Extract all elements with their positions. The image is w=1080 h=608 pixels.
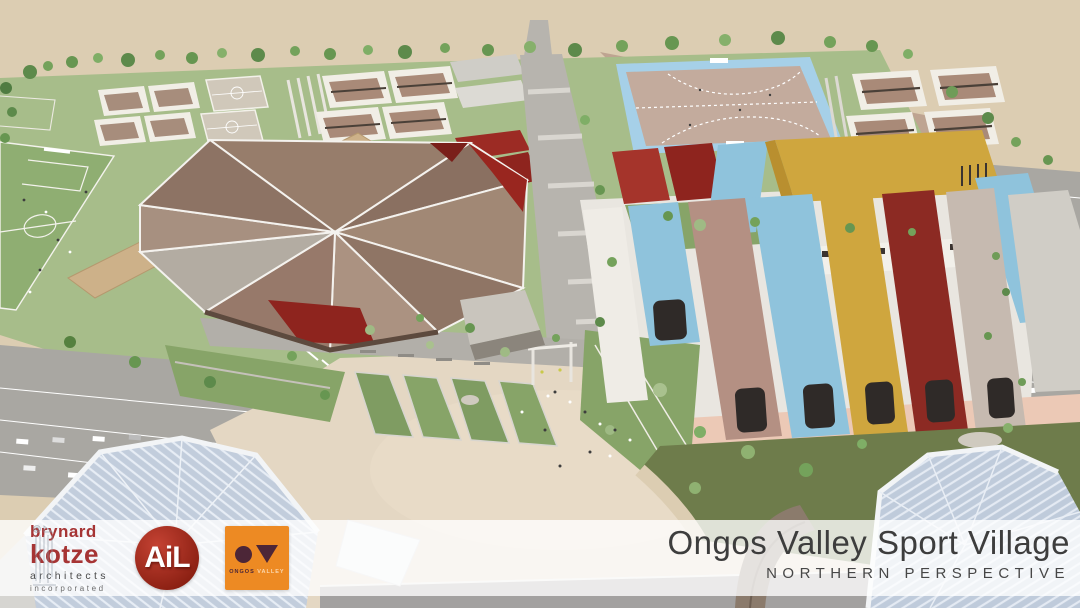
project-title: Ongos Valley Sport Village [667,526,1070,561]
architect-logo: brynard kotze architects incorporated [30,523,109,593]
ail-logo-text: AiL [144,541,189,575]
presentation-slide: brynard kotze architects incorporated Ai… [0,0,1080,608]
ongos-logo-marks [235,545,278,563]
ongos-caption-primary: ONGOS [229,569,254,575]
logo-row: brynard kotze architects incorporated Ai… [30,523,289,593]
ongos-circle-icon [235,546,252,563]
architectural-rendering [0,0,1080,608]
ongos-caption-secondary: VALLEY [257,569,284,575]
ongos-valley-logo: ONGOS VALLEY [225,526,289,590]
ongos-logo-caption: ONGOS VALLEY [229,569,284,575]
title-block: Ongos Valley Sport Village NORTHERN PERS… [667,526,1070,582]
ongos-triangle-icon [256,545,278,563]
view-label: NORTHERN PERSPECTIVE [667,565,1070,582]
architect-column-sketch-icon [30,523,60,589]
ribbon-hall-complex [580,130,1080,470]
ail-logo: AiL [135,526,199,590]
